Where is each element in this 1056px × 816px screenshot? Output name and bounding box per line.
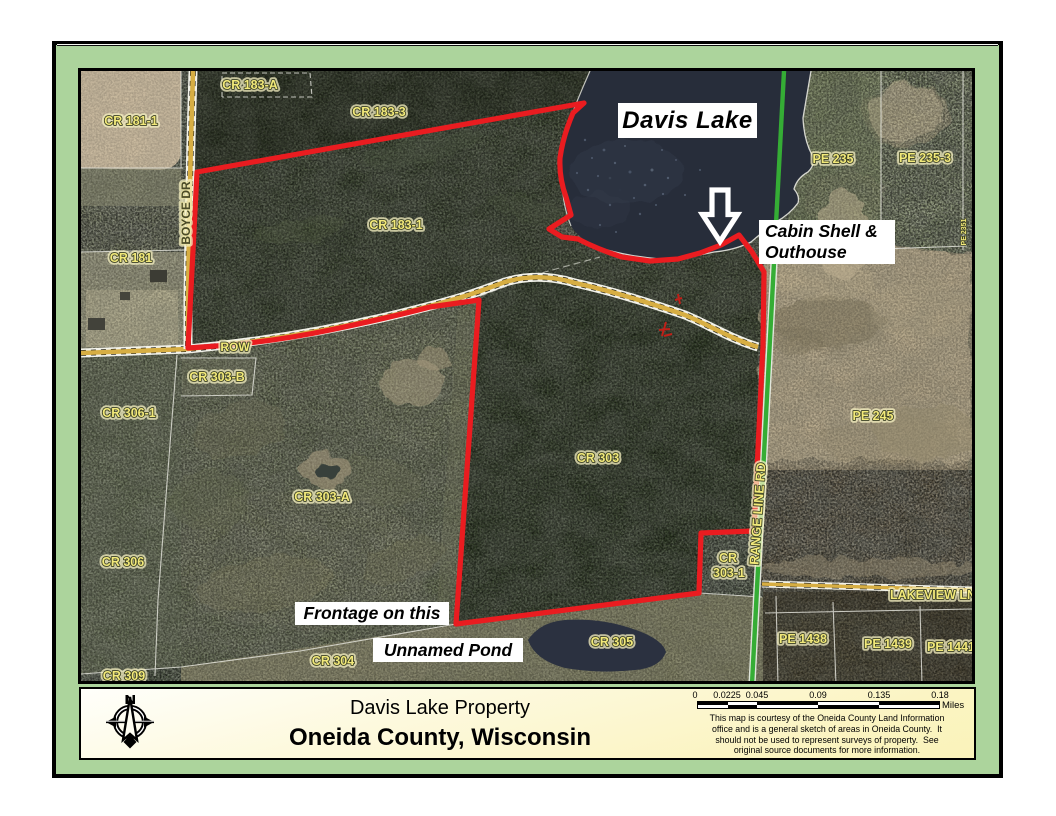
svg-text:CR 304: CR 304 (312, 654, 354, 668)
svg-text:CR 183-3: CR 183-3 (352, 105, 406, 119)
svg-text:ROW: ROW (220, 340, 250, 354)
svg-text:PE 1439: PE 1439 (864, 637, 912, 651)
svg-text:CR 303-A: CR 303-A (294, 490, 350, 504)
svg-text:303-1: 303-1 (713, 566, 745, 580)
svg-text:CR 303-B: CR 303-B (189, 370, 245, 384)
svg-text:BOYCE DR: BOYCE DR (179, 181, 193, 245)
svg-text:CR: CR (719, 551, 737, 565)
svg-text:LAKEVIEW LN: LAKEVIEW LN (890, 588, 972, 602)
svg-text:CR 309: CR 309 (103, 669, 145, 681)
svg-text:PE 2351: PE 2351 (961, 218, 968, 245)
svg-text:CR 303: CR 303 (577, 451, 619, 465)
svg-text:CR 306: CR 306 (102, 555, 144, 569)
svg-text:PE 1438: PE 1438 (779, 632, 827, 646)
svg-text:PE 245: PE 245 (852, 409, 893, 423)
svg-text:CR 305: CR 305 (591, 635, 633, 649)
svg-text:CR 183-A: CR 183-A (222, 78, 278, 92)
svg-text:CR 181: CR 181 (110, 251, 152, 265)
svg-text:CR 306-1: CR 306-1 (102, 406, 156, 420)
svg-text:CR 183-1: CR 183-1 (369, 218, 423, 232)
svg-text:PE 235: PE 235 (812, 152, 853, 166)
svg-text:CR 181-1: CR 181-1 (104, 114, 158, 128)
svg-text:PE 1441: PE 1441 (927, 640, 972, 654)
svg-text:PE 235-3: PE 235-3 (899, 151, 951, 165)
